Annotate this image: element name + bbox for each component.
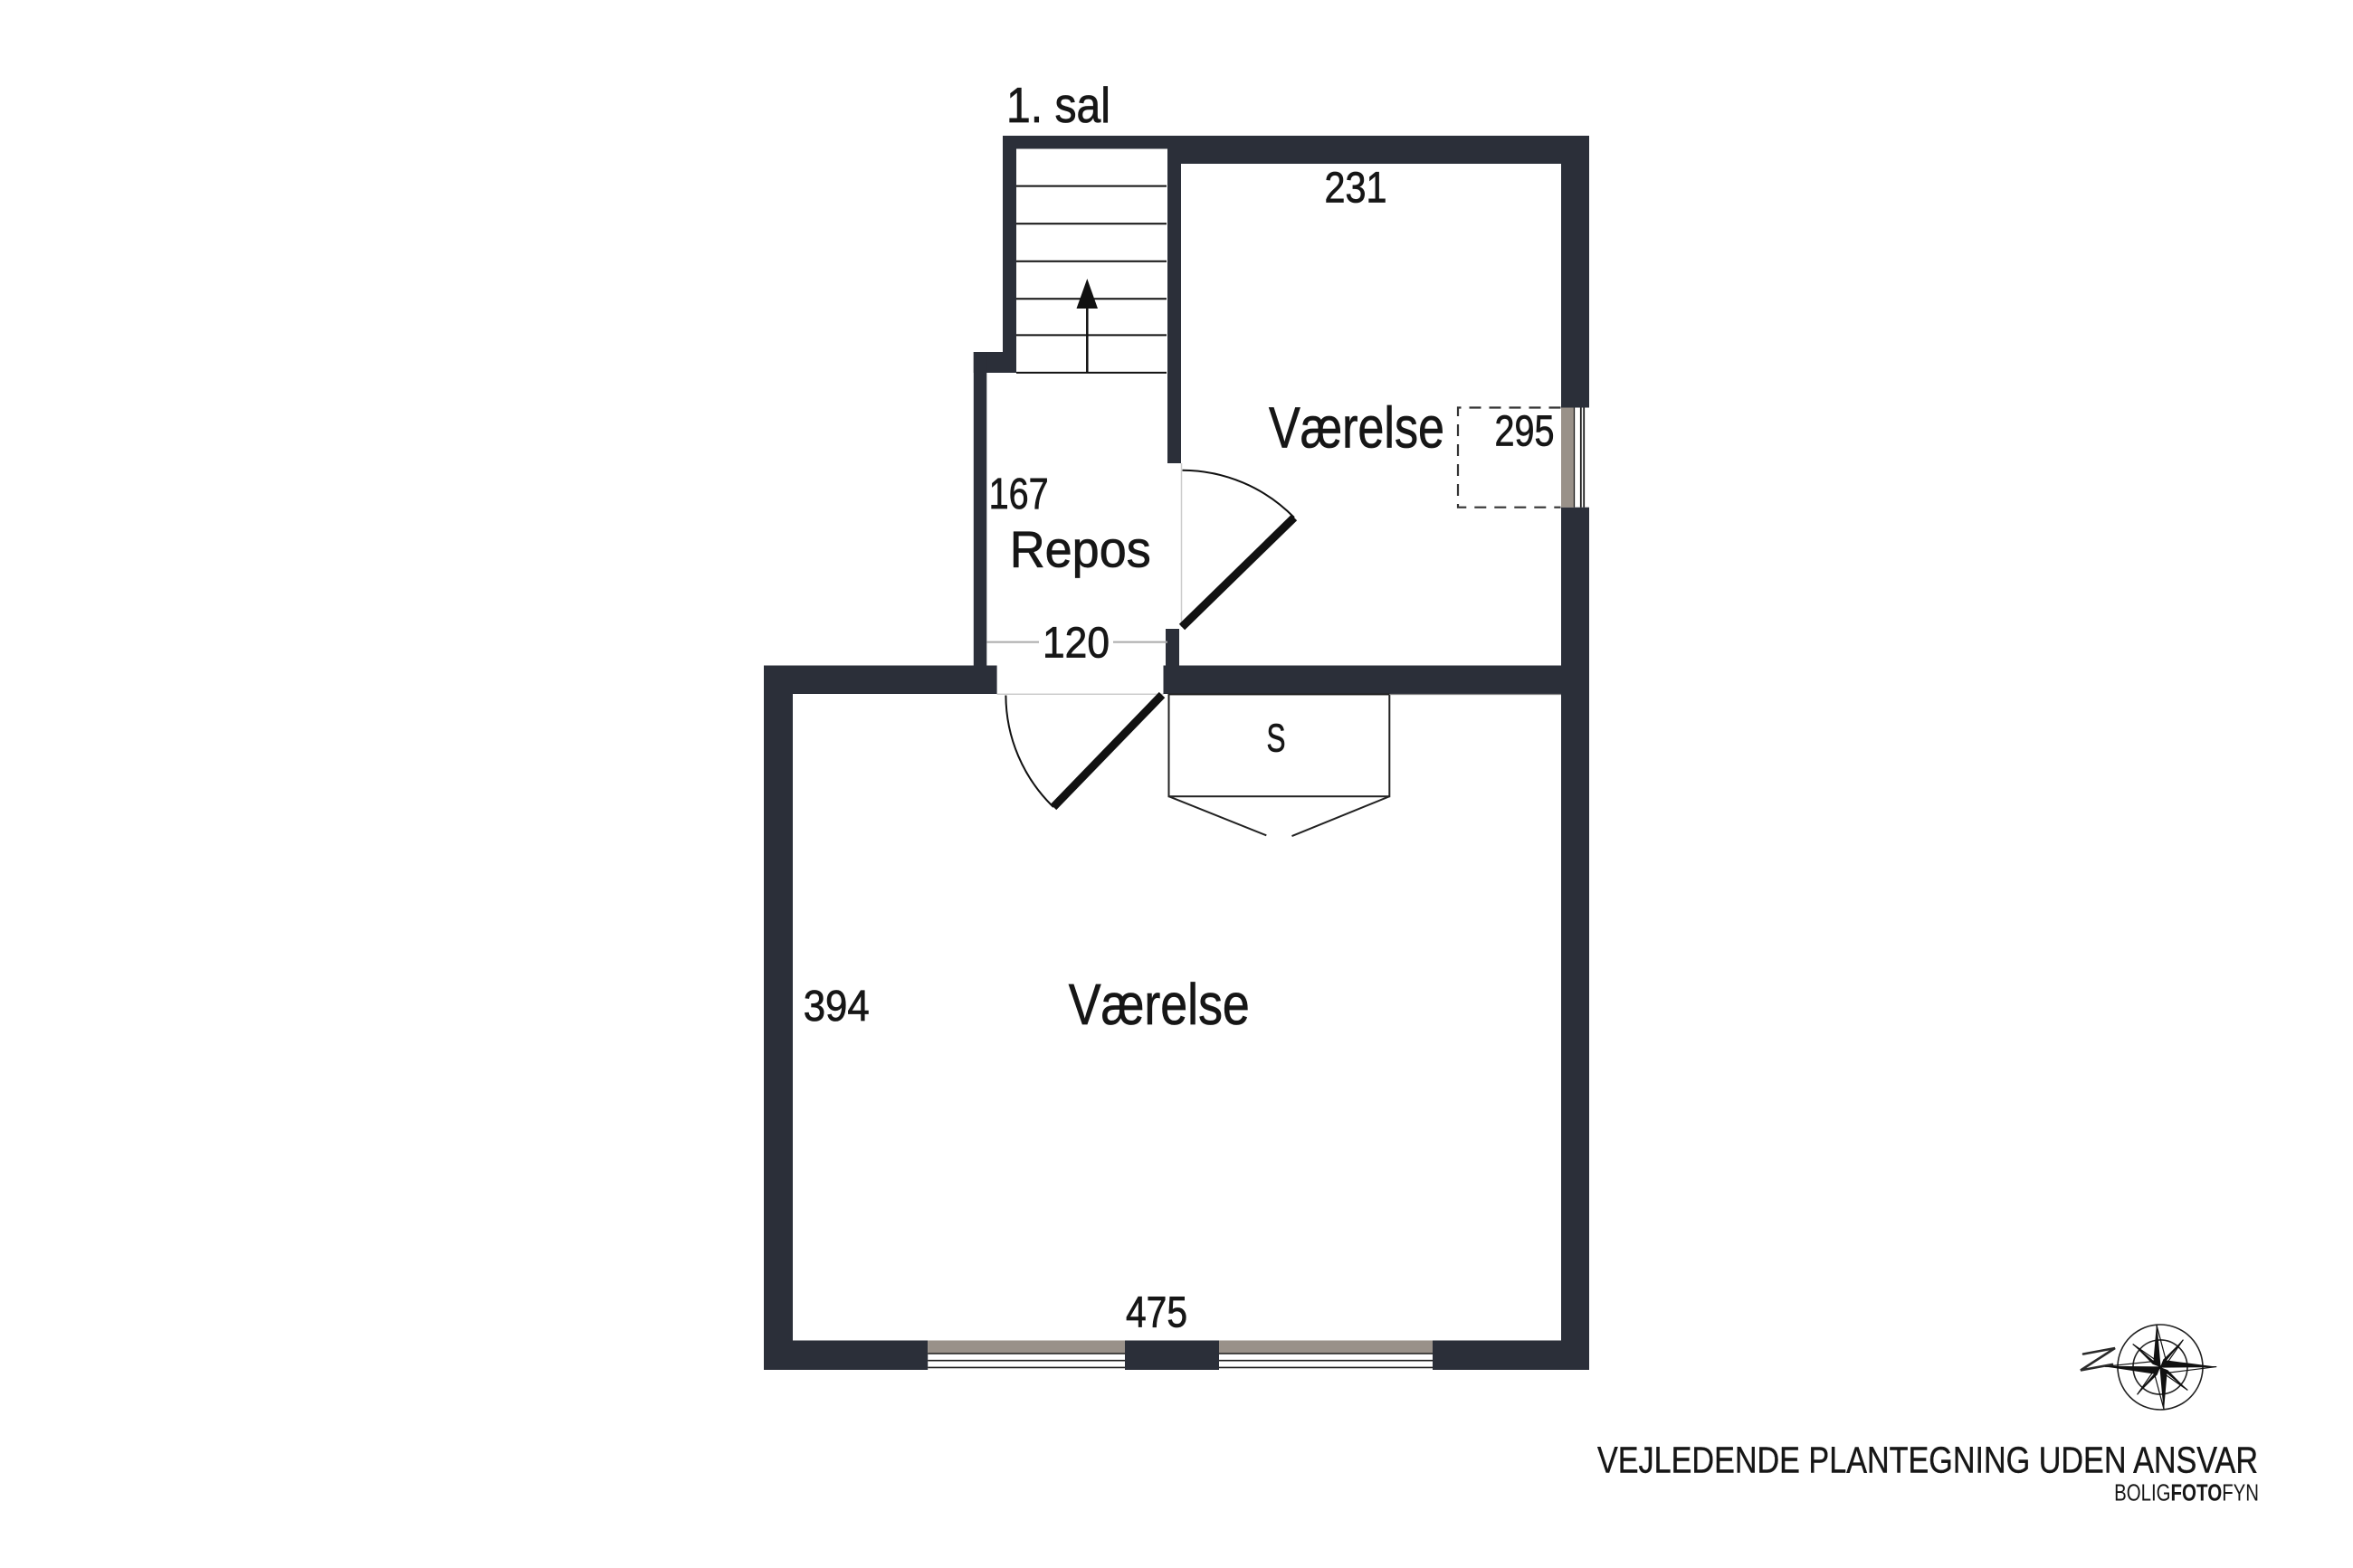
svg-text:FYN: FYN — [2222, 1479, 2259, 1506]
svg-text:231: 231 — [1325, 165, 1387, 213]
svg-text:S: S — [1267, 716, 1286, 760]
svg-text:295: 295 — [1495, 408, 1555, 456]
svg-text:FOTO: FOTO — [2171, 1479, 2223, 1506]
svg-text:Værelse: Værelse — [1069, 972, 1250, 1037]
svg-text:394: 394 — [804, 983, 870, 1031]
svg-text:120: 120 — [1043, 620, 1110, 668]
svg-text:Værelse: Værelse — [1269, 395, 1444, 461]
svg-text:VEJLEDENDE PLANTEGNING UDEN AN: VEJLEDENDE PLANTEGNING UDEN ANSVAR — [1597, 1439, 2258, 1480]
svg-text:167: 167 — [989, 470, 1049, 518]
svg-text:Repos: Repos — [1010, 521, 1151, 579]
svg-text:475: 475 — [1126, 1288, 1187, 1336]
svg-text:1. sal: 1. sal — [1006, 77, 1110, 133]
svg-text:BOLIG: BOLIG — [2114, 1479, 2170, 1506]
